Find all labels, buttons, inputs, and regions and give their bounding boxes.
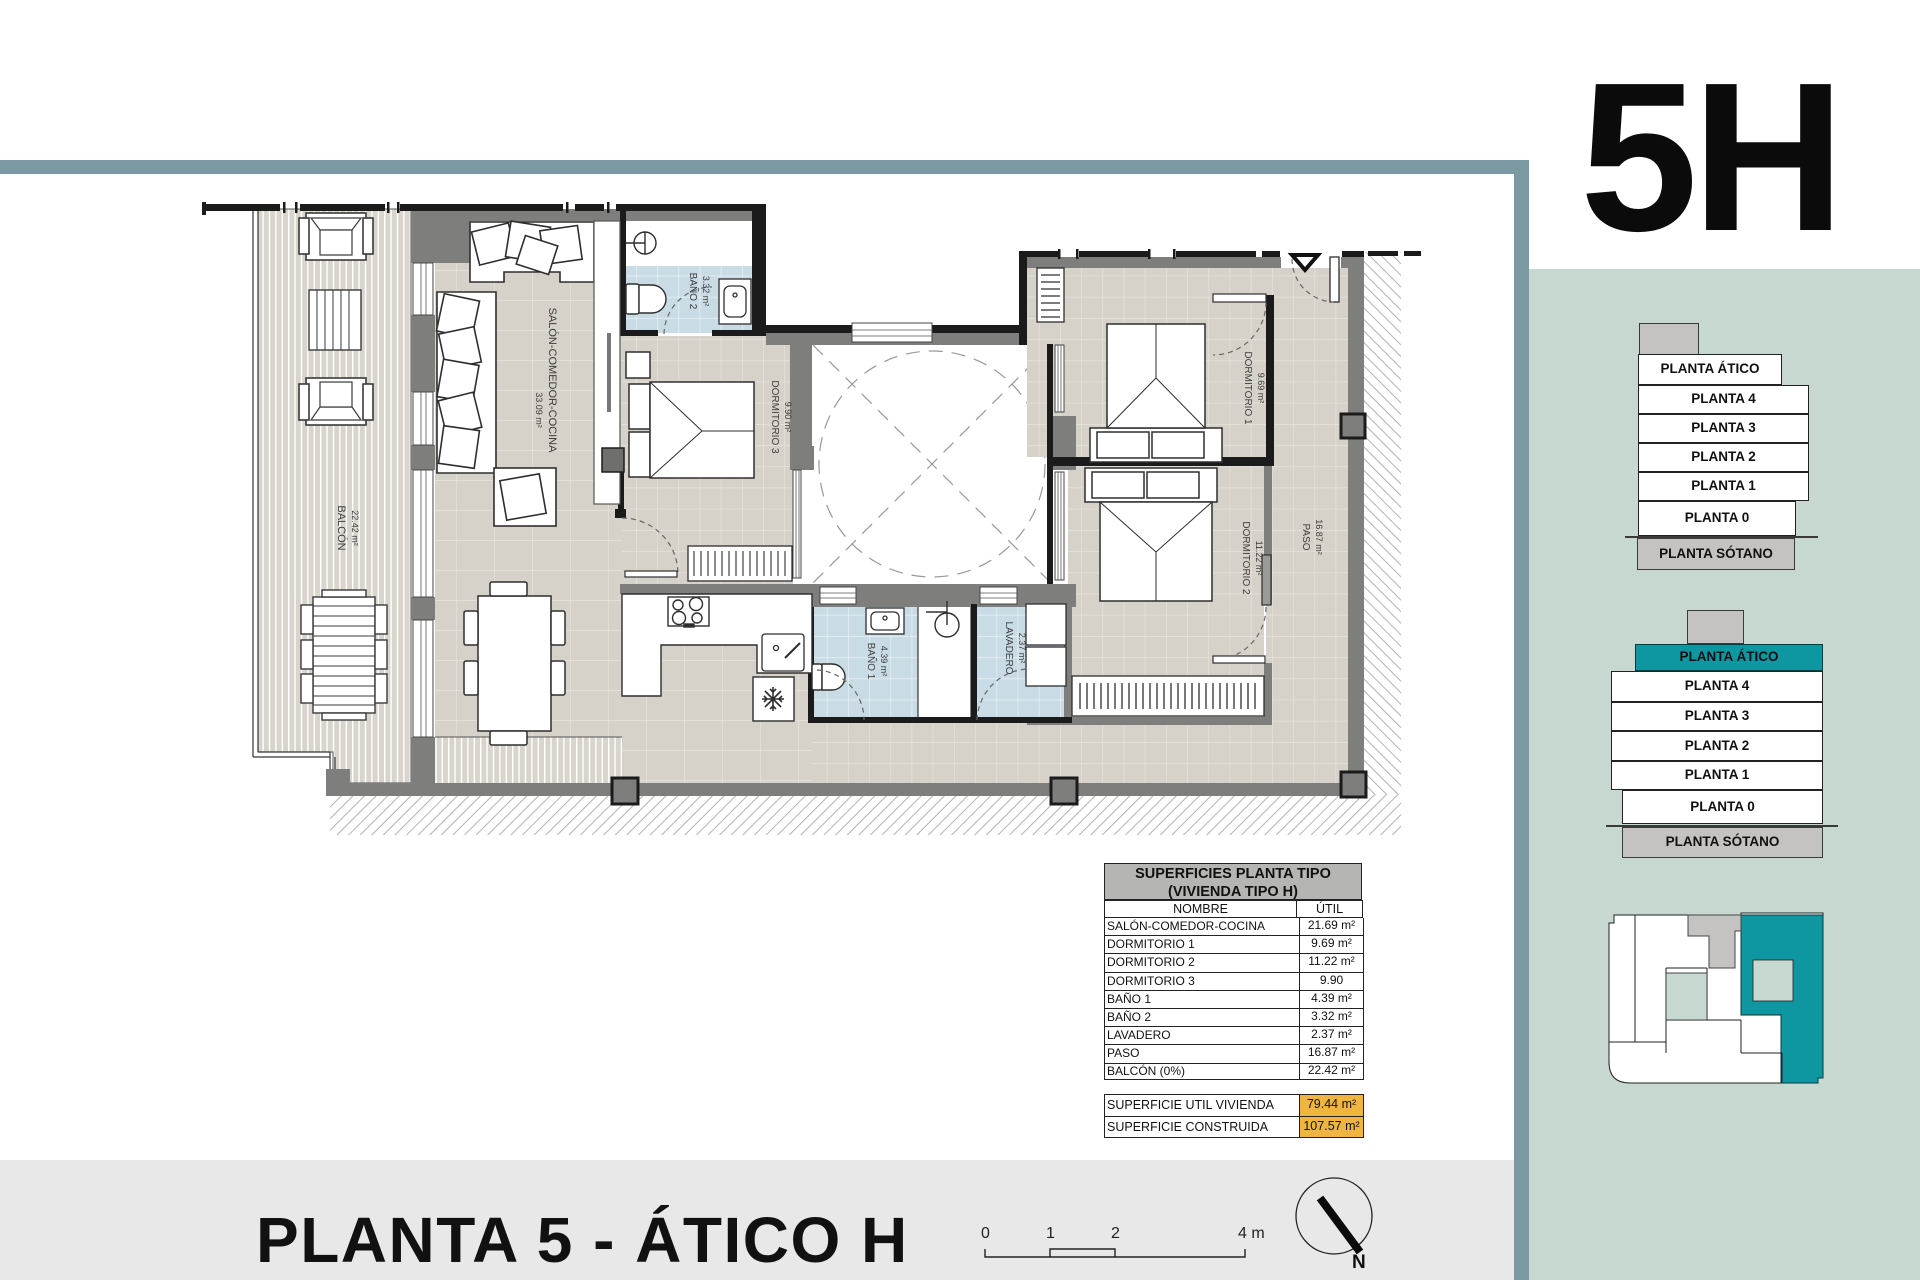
- svg-text:DORMITORIO 2: DORMITORIO 2: [1240, 521, 1251, 595]
- svg-text:11.22 m²: 11.22 m²: [1254, 541, 1264, 576]
- svg-text:22.42 m²: 22.42 m²: [350, 510, 360, 546]
- svg-text:4 m: 4 m: [1238, 1225, 1265, 1242]
- svg-text:4.39 m²: 4.39 m²: [879, 646, 889, 677]
- svg-text:16.87 m²: 16.87 m²: [1314, 519, 1324, 555]
- svg-text:33.09 m²: 33.09 m²: [534, 392, 544, 428]
- svg-text:LAVADERO: LAVADERO: [1003, 622, 1014, 675]
- svg-text:DORMITORIO 3: DORMITORIO 3: [769, 380, 780, 454]
- svg-text:N: N: [1352, 1252, 1366, 1273]
- svg-text:0: 0: [981, 1225, 990, 1242]
- svg-text:2.37 m²: 2.37 m²: [1017, 633, 1027, 664]
- svg-text:3.32 m²: 3.32 m²: [701, 276, 711, 307]
- svg-text:1: 1: [1046, 1225, 1055, 1242]
- svg-text:2: 2: [1111, 1225, 1120, 1242]
- svg-text:9.90 m²: 9.90 m²: [783, 402, 793, 433]
- svg-text:SALÓN-COMEDOR-COCINA: SALÓN-COMEDOR-COCINA: [546, 308, 559, 454]
- svg-text:BALCÓN: BALCÓN: [335, 505, 348, 550]
- svg-text:BAÑO 1: BAÑO 1: [865, 643, 878, 680]
- svg-text:PASO: PASO: [1300, 523, 1311, 550]
- svg-text:9.69 m²: 9.69 m²: [1256, 373, 1266, 404]
- svg-text:DORMITORIO 1: DORMITORIO 1: [1242, 351, 1253, 425]
- svg-text:BAÑO 2: BAÑO 2: [687, 273, 700, 310]
